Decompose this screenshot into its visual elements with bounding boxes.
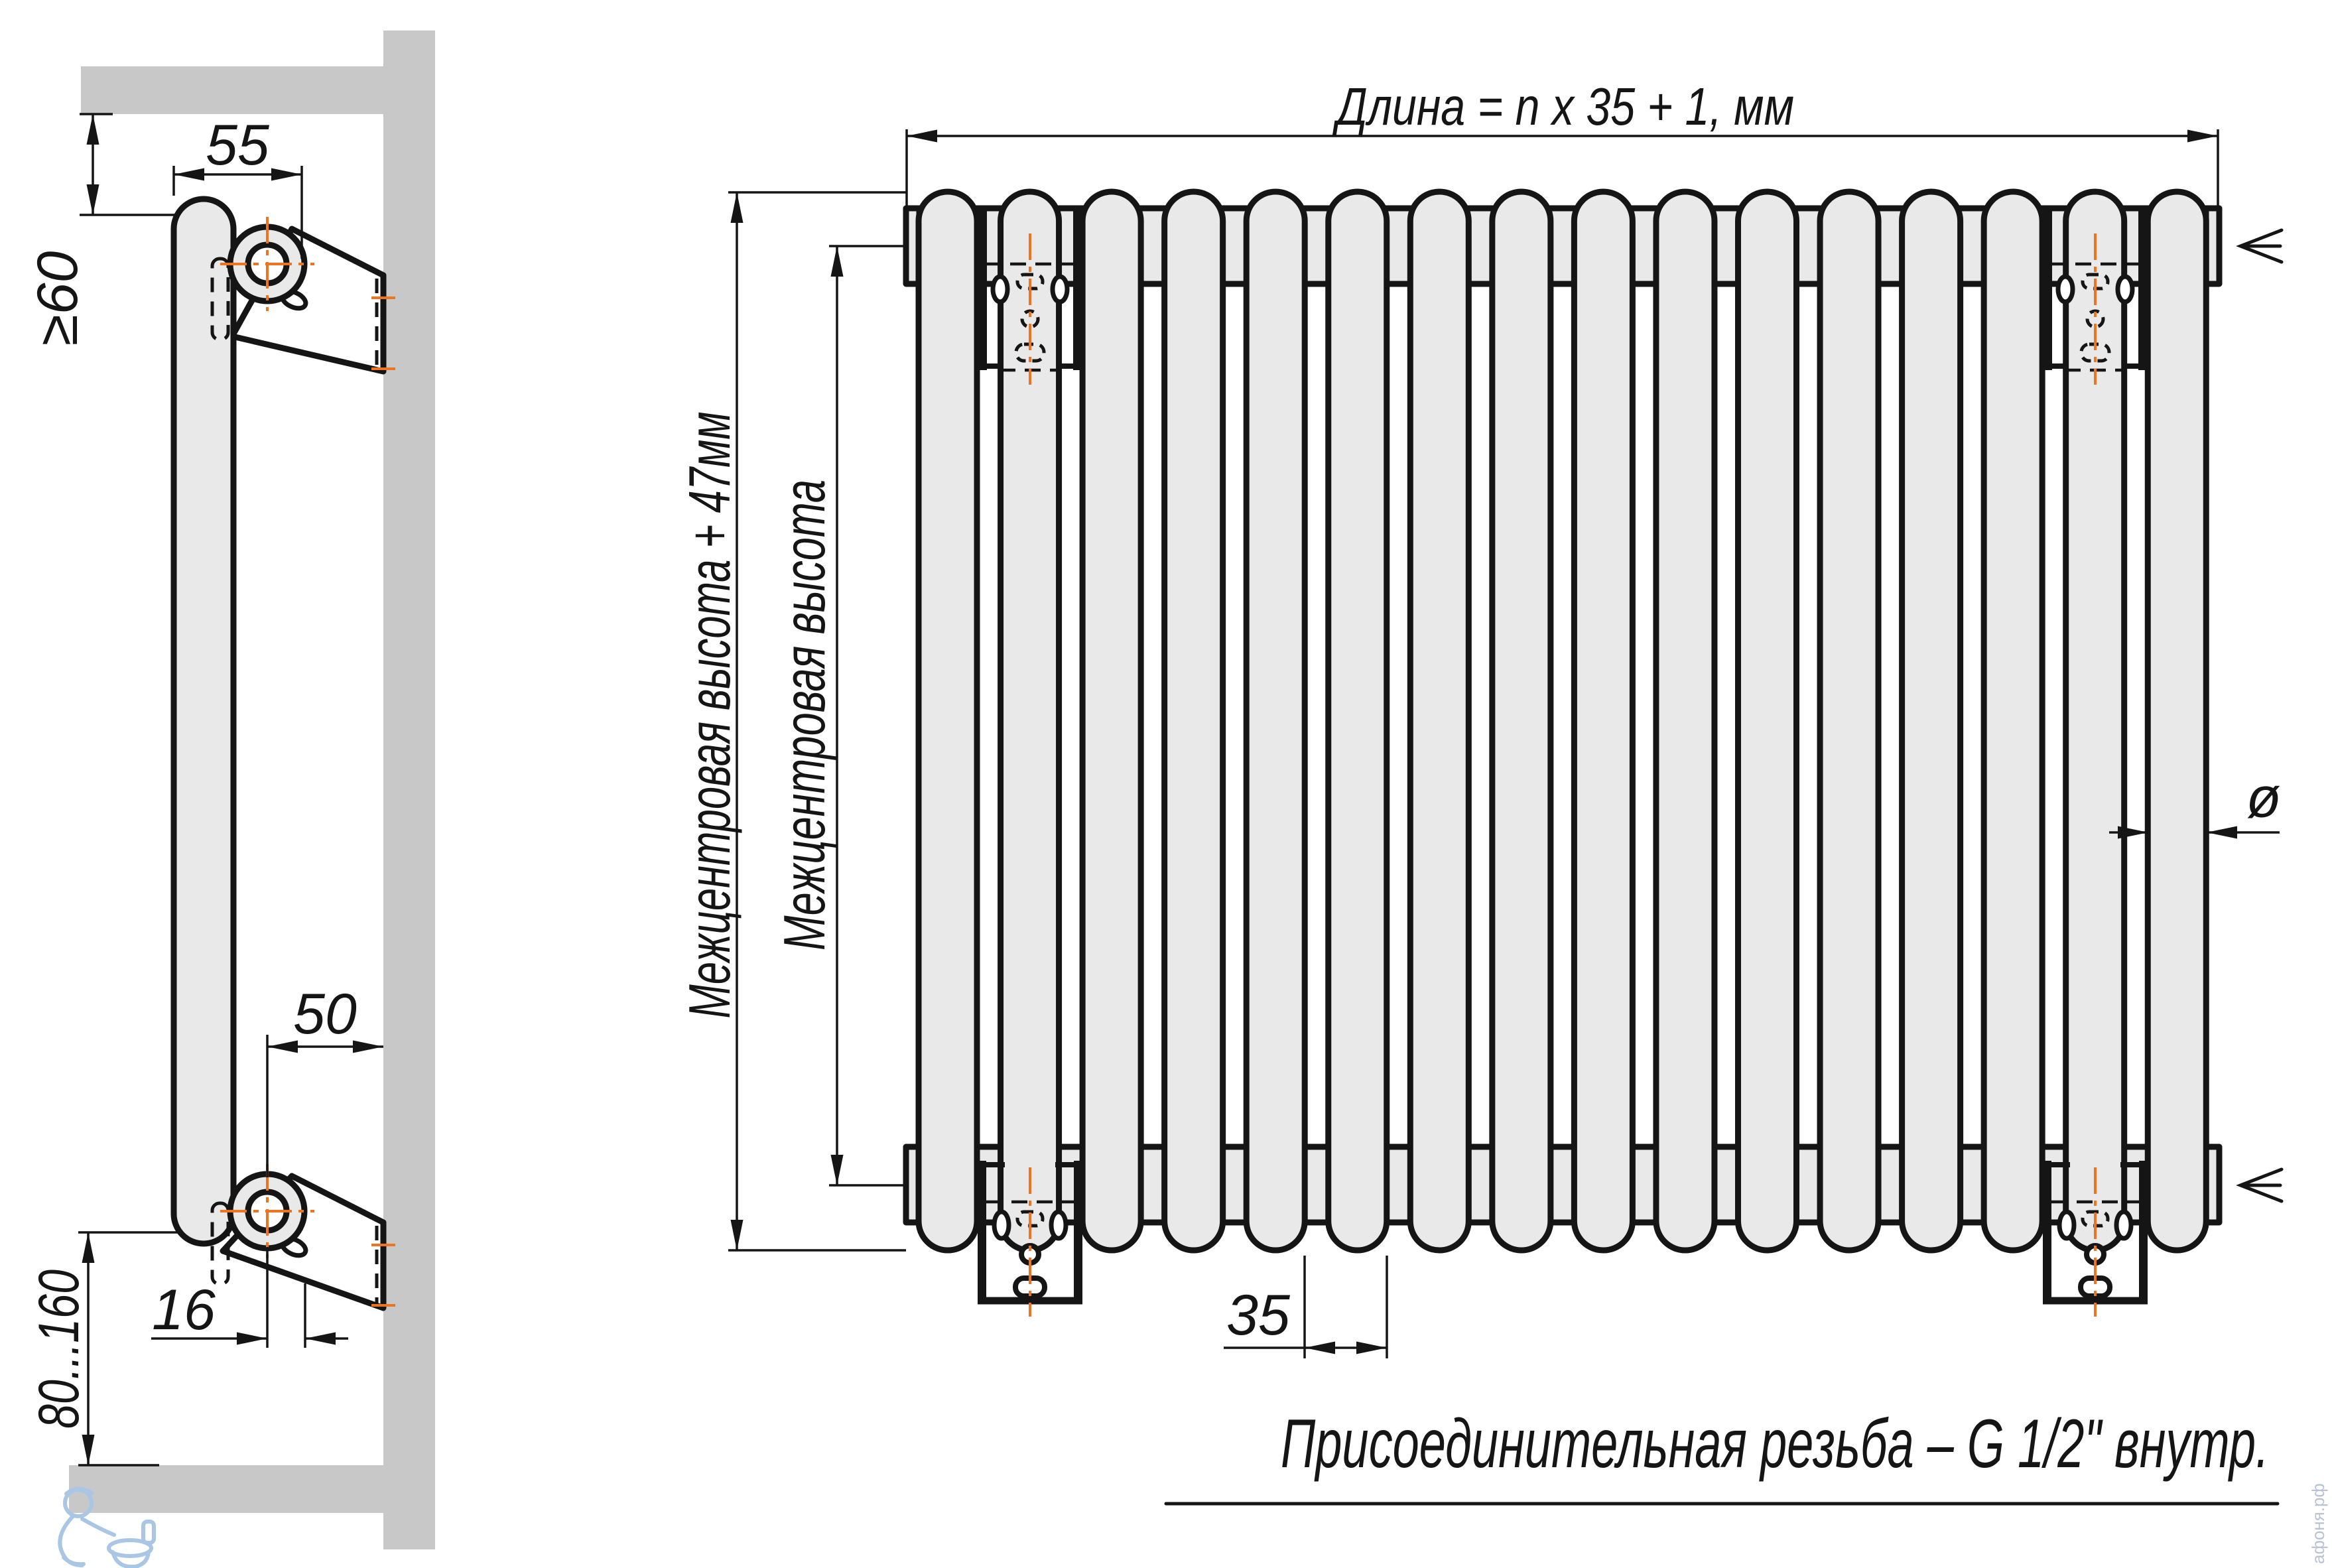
- radiator-tubes: [919, 192, 2206, 1250]
- radiator-tube: [1902, 192, 1961, 1250]
- dim-label-center-height: Межцентровая высота: [771, 480, 837, 950]
- centerlines-side: [220, 217, 395, 1305]
- dimension-min60: ≥60: [26, 114, 178, 346]
- flow-arrow-bottom-icon: [2240, 1169, 2282, 1201]
- site-watermark: афоня.рф: [2308, 1483, 2328, 1564]
- dim-label-height-plus47: Межцентровая высота + 47мм: [677, 412, 742, 1019]
- dim-label-length-formula: Длина = n x 35 + 1, мм: [1332, 77, 1794, 136]
- dim-label-35: 35: [1226, 1283, 1291, 1347]
- dimension-80-160: 80...160: [27, 1232, 178, 1465]
- flow-arrow-top-icon: [2240, 230, 2282, 262]
- radiator-tube: [1410, 192, 1468, 1250]
- radiator-tube: [919, 192, 977, 1250]
- radiator-tube: [1492, 192, 1551, 1250]
- side-view: 55 ≥60 50 16: [26, 31, 435, 1549]
- floor: [69, 1465, 383, 1513]
- dimension-50: 50: [267, 982, 383, 1177]
- radiator-tube: [1738, 192, 1797, 1250]
- dim-label-16: 16: [152, 1278, 216, 1342]
- radiator-tube: [1574, 192, 1632, 1250]
- dimension-pitch-35: 35: [1224, 1256, 1387, 1358]
- ceiling: [81, 66, 383, 114]
- drawing-page: 55 ≥60 50 16: [0, 0, 2332, 1568]
- radiator-tube: [1165, 192, 1223, 1250]
- radiator-tube: [1656, 192, 1715, 1250]
- radiator-tube: [2148, 192, 2206, 1250]
- radiator-tube: [1984, 192, 2042, 1250]
- radiator-tube: [1001, 192, 1059, 1250]
- dim-label-55: 55: [206, 113, 270, 177]
- front-view: Длина = n x 35 + 1, мм Межцентровая высо…: [677, 77, 2282, 1504]
- thread-note: Присоединительная резьба – G 1/2" внутр.: [1166, 1405, 2278, 1504]
- radiator-tube: [2066, 192, 2124, 1250]
- dim-label-diameter: ø: [2246, 766, 2282, 830]
- wall: [383, 31, 435, 1549]
- radiator-tube: [1820, 192, 1878, 1250]
- dim-label-50: 50: [293, 982, 357, 1046]
- thread-note-text: Присоединительная резьба – G 1/2" внутр.: [1281, 1405, 2269, 1482]
- radiator-technical-drawing: 55 ≥60 50 16: [0, 0, 2332, 1568]
- radiator-tube: [1246, 192, 1305, 1250]
- dim-label-80-160: 80...160: [27, 1270, 91, 1429]
- dimension-center-height: Межцентровая высота: [771, 246, 906, 1185]
- dim-label-min60: ≥60: [26, 251, 90, 346]
- radiator-tube-side: [174, 199, 233, 1244]
- radiator-tube: [1082, 192, 1141, 1250]
- radiator-tube: [1328, 192, 1387, 1250]
